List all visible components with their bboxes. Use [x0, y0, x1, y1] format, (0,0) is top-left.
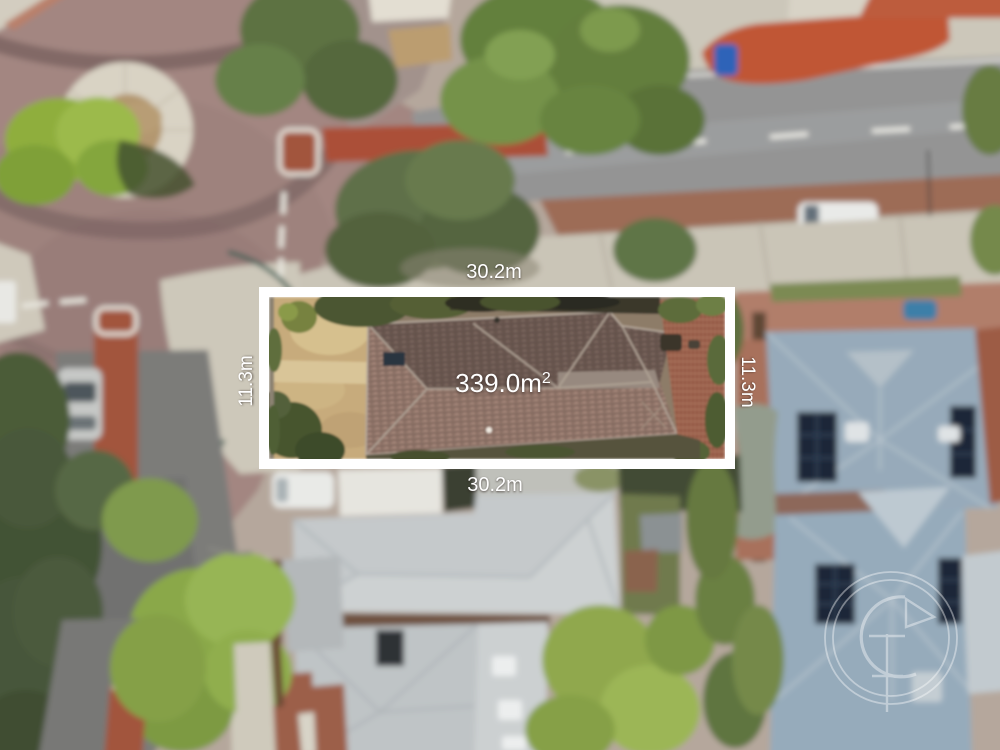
svg-text:11.3m: 11.3m — [236, 355, 257, 406]
svg-text:339.0m2: 339.0m2 — [455, 368, 551, 398]
svg-text:30.2m: 30.2m — [466, 261, 522, 283]
svg-text:30.2m: 30.2m — [467, 474, 523, 496]
svg-text:11.3m: 11.3m — [737, 356, 758, 407]
